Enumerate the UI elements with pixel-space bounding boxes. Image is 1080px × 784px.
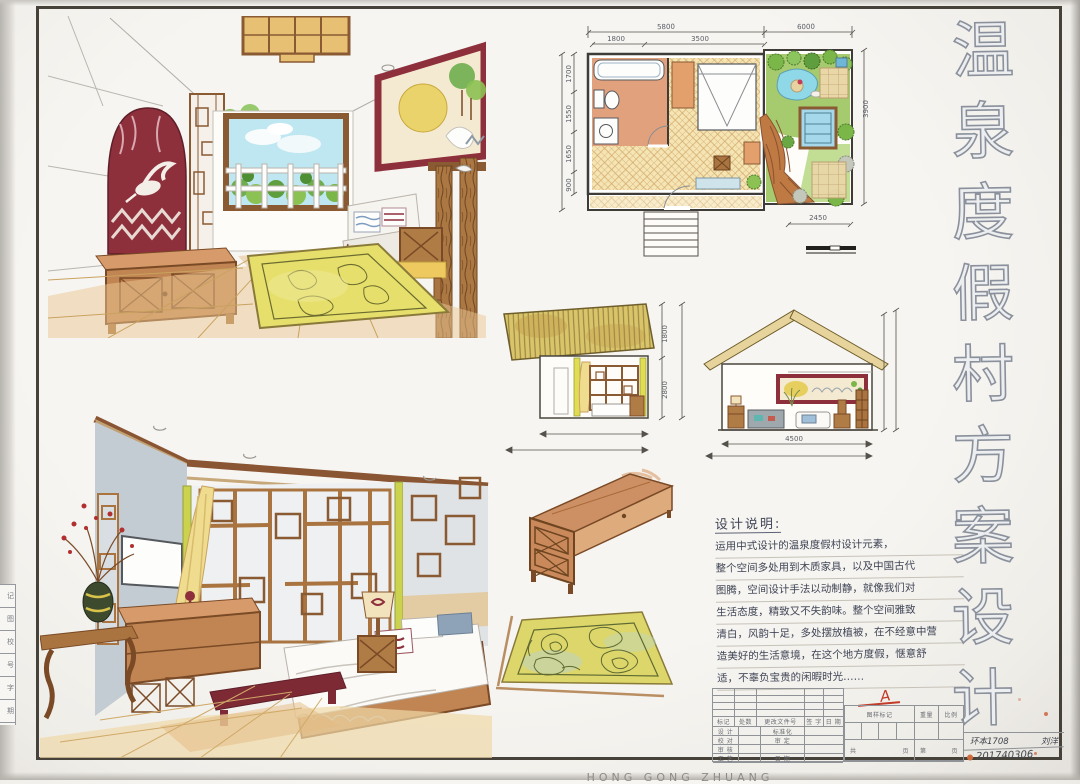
edge-cell: 期 [0,700,15,723]
svg-text:3500: 3500 [691,35,709,43]
garden [760,50,854,206]
curtain [579,362,590,412]
ink-speck [1018,698,1021,701]
bathroom [592,58,668,146]
rev-header: 签 字 [805,717,824,727]
photo-edge-right [1070,0,1080,780]
ink-speck [1034,752,1037,755]
svg-text:2800: 2800 [661,381,669,399]
title-block-revision-table: 标记 处数 更改文件号 签 字 日 期 设 计 标准化 校 对 审 定 审 核 … [712,688,844,762]
gable-roof [704,310,888,370]
hot-tub [800,108,836,148]
rev-header: 处数 [735,717,757,727]
svg-text:2450: 2450 [809,214,827,222]
svg-text:1800: 1800 [661,325,669,343]
ceiling-lamp [243,16,349,62]
moon-artwork-panel [378,46,486,168]
class-id: 环本1708 [970,735,1009,747]
design-notes: 设计说明: 运用中式设计的温泉度假村设计元素， 整个空间多处用到木质家具，以及中… [715,510,965,690]
rug-sketch [492,592,684,710]
role-label: 校 对 [713,736,739,745]
living-room-perspective-drawing [48,16,486,338]
floor-plan-drawing: 5800 6000 1800 3500 1700 1550 1650 900 3… [548,14,892,266]
svg-text:1700: 1700 [565,65,573,83]
entry-stairs [644,212,698,256]
window-garden-view [213,111,353,251]
svg-text:1650: 1650 [565,145,573,163]
arched-feature-wall [108,108,186,254]
sideboard-sketch [502,454,692,596]
pages-total-suffix: 页 [902,746,909,755]
role-label: 审 核 [713,745,739,754]
bed-section [592,404,630,416]
role-label [761,745,805,754]
scale-bar [806,246,856,253]
role-label: 日 期 [761,754,805,763]
stamp-header: 图样标记 [845,706,915,723]
role-label: 设 计 [713,727,739,736]
room-section [540,356,648,418]
bedroom-perspective-drawing [40,386,492,758]
page-num-prefix: 第 [920,746,927,755]
weight-header: 重量 [915,706,939,723]
room-section [718,364,878,430]
title-block: 标记 处数 更改文件号 签 字 日 期 设 计 标准化 校 对 审 定 审 核 … [712,688,1064,762]
section-width-label: 4500 [785,435,803,443]
edge-cell: 图 [0,608,15,631]
svg-text:5800: 5800 [657,23,675,31]
pages-total-prefix: 共 [850,746,857,755]
edge-cell: 校 [0,631,15,654]
house-section-drawing: 4500 [692,294,904,466]
page-num-suffix: 页 [951,746,958,755]
svg-text:1550: 1550 [565,105,573,123]
ink-dot [967,754,973,760]
title-block-signature-area: 环本1708 刘洋 201740306 [964,688,1064,762]
thatched-roof [504,304,654,360]
svg-text:900: 900 [565,178,573,191]
design-notes-heading: 设计说明: [715,513,782,534]
left-edge-table-strip: 记 图 校 号 字 期 [0,584,16,725]
svg-text:6000: 6000 [797,23,815,31]
edge-cell: 字 [0,677,15,700]
bedroom-elevation-drawing: 1800 2800 [496,296,698,464]
garden-table [836,58,847,67]
cabinet-section [630,396,644,416]
rev-header: 日 期 [824,717,843,727]
scale-header: 比例 [939,706,963,723]
patio-bottom [812,162,846,198]
role-label: 审 定 [761,736,805,745]
role-label: 标准化 [761,727,805,736]
svg-text:1800: 1800 [607,35,625,43]
patio-top [820,68,848,98]
title-block-stamp-table: 图样标记 重量 比例 共 页 第 页 [844,705,964,762]
rev-header: 标记 [713,717,735,727]
edge-cell: 号 [0,654,15,677]
pillow-blue [437,613,472,635]
edge-cell: 记 [0,585,15,608]
rev-header: 更改文件号 [757,717,805,727]
student-number: 201740306 [976,749,1034,762]
svg-text:3900: 3900 [862,100,870,118]
tv-screen [122,536,182,588]
bottom-watermark-text: HONG GONG ZHUANG [470,771,890,784]
author-name: 刘洋 [1041,735,1058,747]
design-notes-line: 适，不辜负宝贵的闲暇时光…… [717,665,965,690]
ink-speck [1044,712,1048,716]
hall-floor [592,146,668,190]
approval-mark: A [879,686,892,706]
role-label: 工 艺 [713,754,739,763]
